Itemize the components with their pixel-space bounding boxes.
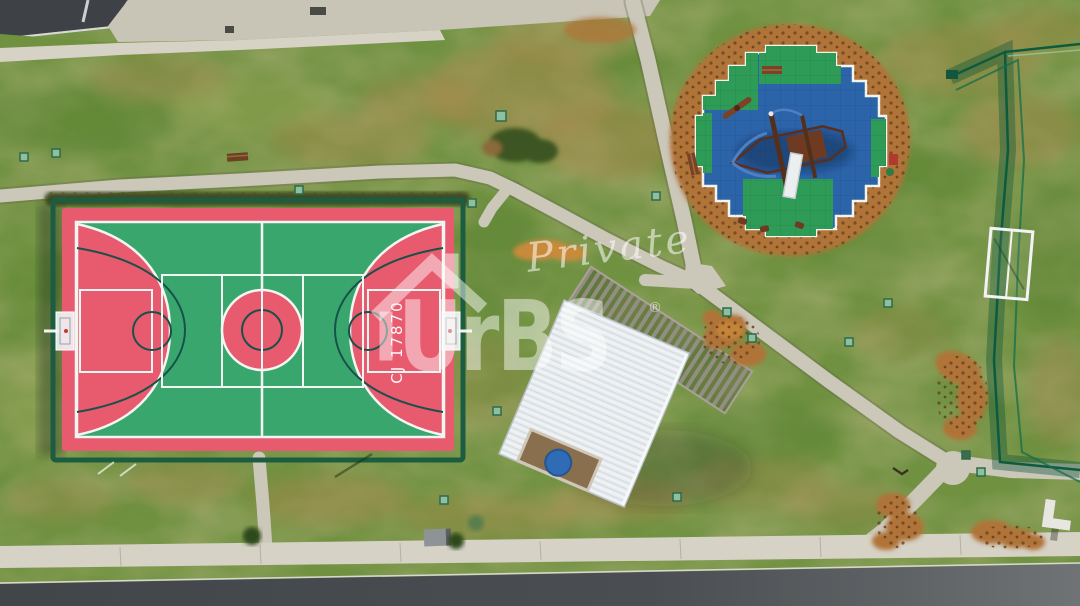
utility-shed [424, 529, 452, 547]
aerial-photo: Private UrBS ® CJ 17870 [0, 0, 1080, 606]
park-bench [227, 152, 249, 161]
basketball-court [38, 200, 472, 477]
bush [448, 533, 464, 549]
playground-item-red [889, 154, 898, 165]
drain-grate [310, 7, 326, 15]
drain-grate [225, 26, 234, 33]
fence-gate-post [946, 70, 958, 79]
playground-item-green [886, 168, 894, 176]
bush [243, 527, 261, 545]
playground-bench-top [762, 66, 782, 74]
soccer-goal [985, 228, 1033, 299]
aerial-scene [0, 0, 1080, 606]
